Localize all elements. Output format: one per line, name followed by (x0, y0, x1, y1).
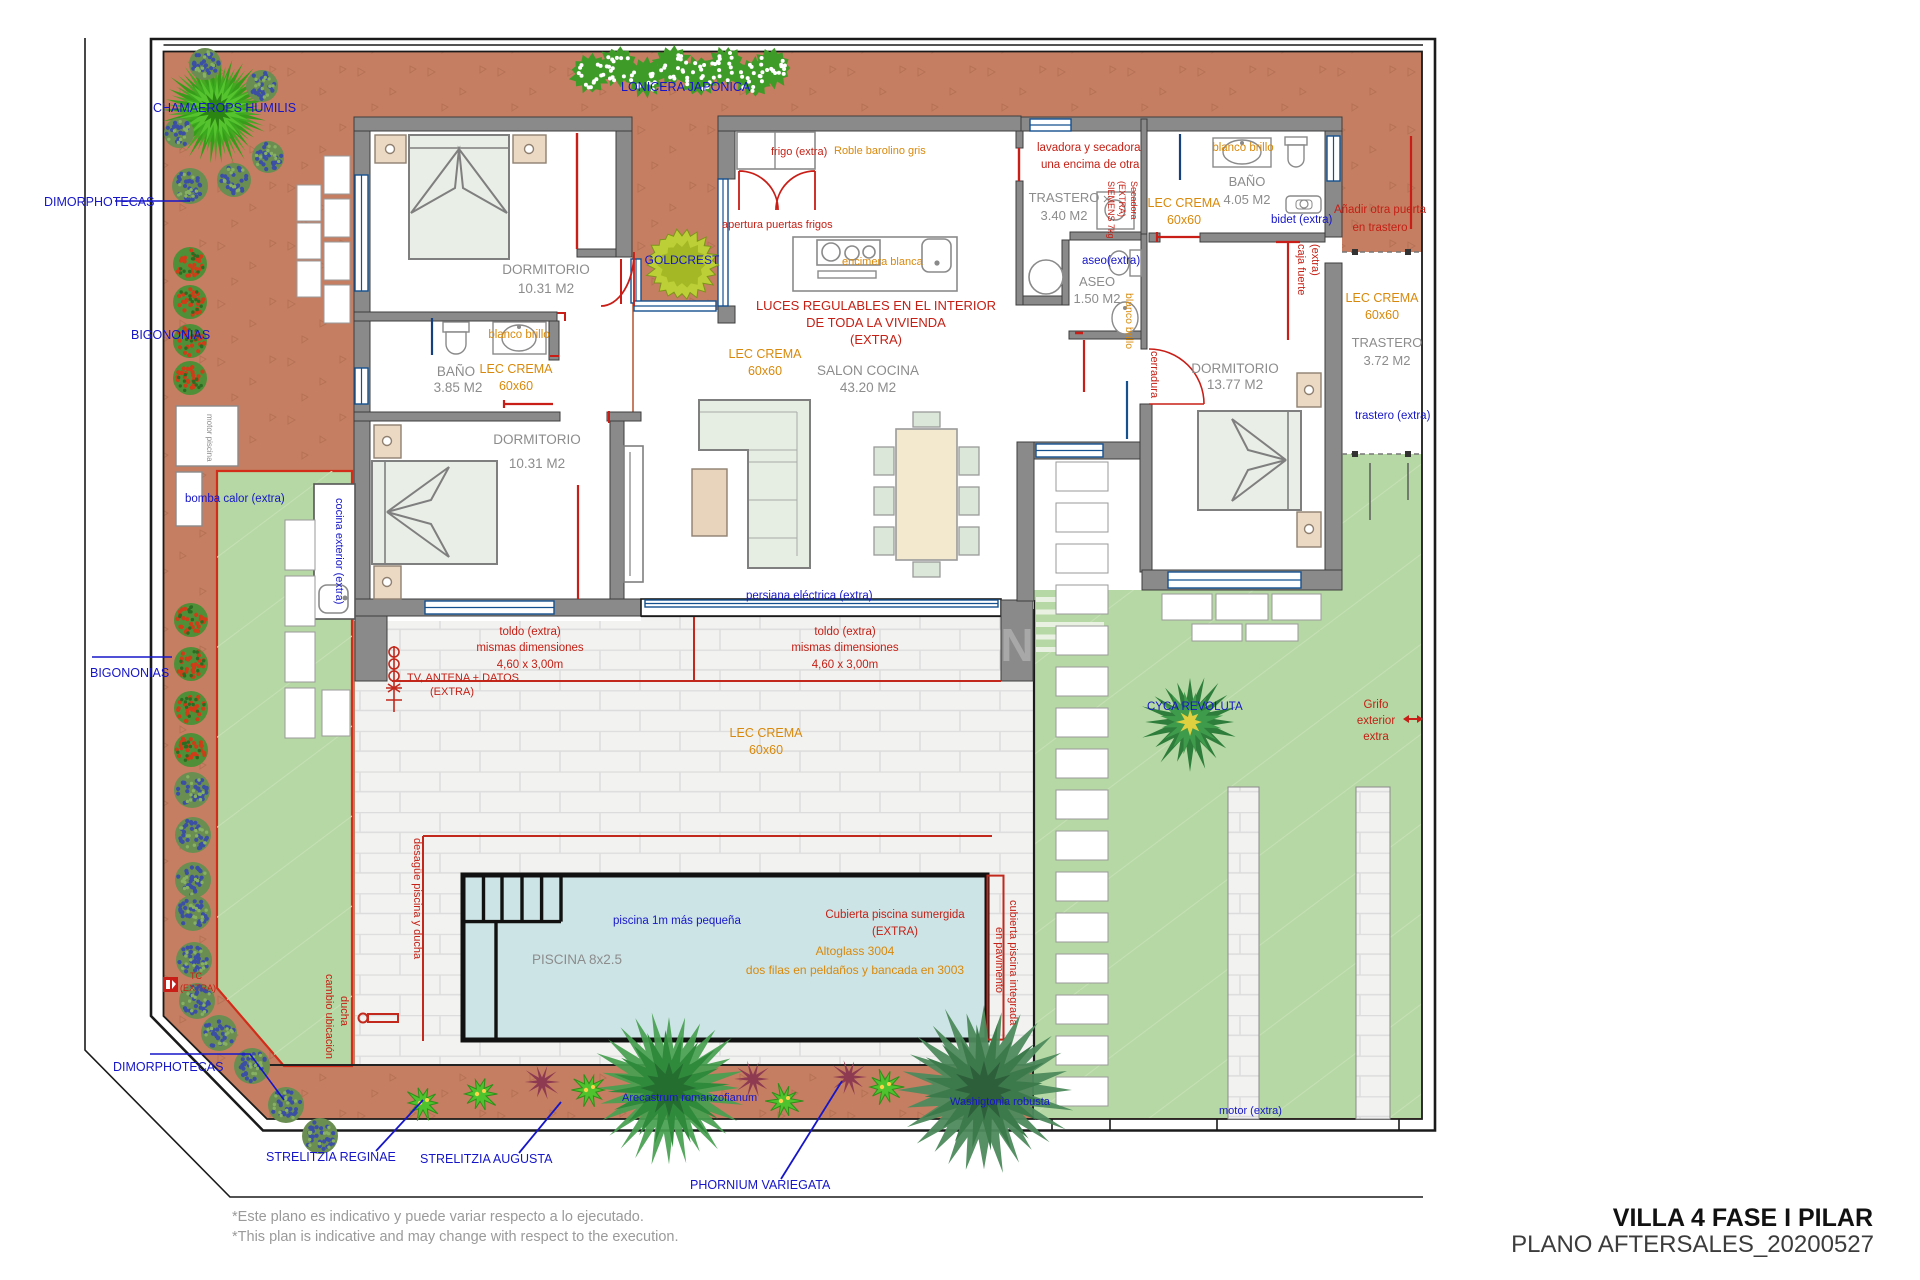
svg-text:LEC CREMA: LEC CREMA (1346, 291, 1420, 305)
svg-text:en trastero: en trastero (1353, 222, 1408, 234)
svg-text:GOLDCREST: GOLDCREST (645, 253, 720, 267)
svg-text:LEC CREMA: LEC CREMA (729, 347, 803, 361)
svg-text:blanco brillo: blanco brillo (1123, 293, 1135, 349)
svg-text:extra: extra (1363, 731, 1389, 743)
svg-text:cubierta piscina integrada: cubierta piscina integrada (1007, 900, 1019, 1026)
svg-text:13.77 M2: 13.77 M2 (1207, 377, 1263, 392)
svg-text:CYCA REVOLUTA: CYCA REVOLUTA (1147, 701, 1243, 713)
svg-text:Washigtonia robusta: Washigtonia robusta (950, 1096, 1051, 1108)
svg-text:SALON COCINA: SALON COCINA (817, 363, 919, 378)
svg-text:(EXTRA): (EXTRA) (430, 686, 474, 698)
svg-text:cerradura: cerradura (1148, 351, 1160, 399)
svg-text:Roble barolino gris: Roble barolino gris (834, 145, 926, 157)
svg-text:(EXTRA): (EXTRA) (1117, 181, 1127, 217)
svg-text:TRASTERO: TRASTERO (1029, 190, 1100, 205)
svg-text:Secadora: Secadora (1129, 181, 1139, 220)
svg-text:60x60: 60x60 (749, 743, 783, 757)
svg-text:encimera blanca: encimera blanca (842, 256, 924, 268)
svg-text:cocina exterior (extra): cocina exterior (extra) (333, 498, 345, 604)
svg-text:apertura puertas frigos: apertura puertas frigos (722, 219, 833, 231)
svg-text:BIGONONIAS: BIGONONIAS (131, 328, 210, 342)
svg-text:Altoglass 3004: Altoglass 3004 (816, 944, 895, 958)
svg-text:mismas dimensiones: mismas dimensiones (791, 642, 899, 654)
svg-text:LEC CREMA: LEC CREMA (730, 726, 804, 740)
svg-text:(EXTRA): (EXTRA) (850, 332, 902, 347)
svg-text:DIMORPHOTECAS: DIMORPHOTECAS (44, 195, 154, 209)
svg-text:(EXTRA): (EXTRA) (872, 926, 918, 938)
svg-text:frigo (extra): frigo (extra) (771, 146, 827, 158)
svg-text:(EXTRA): (EXTRA) (180, 983, 216, 993)
svg-text:piscina 1m más pequeña: piscina 1m más pequeña (613, 915, 741, 927)
svg-text:DORMITORIO: DORMITORIO (502, 262, 590, 277)
svg-text:Grifo: Grifo (1364, 699, 1389, 711)
svg-text:LUCES REGULABLES EN EL INTERIO: LUCES REGULABLES EN EL INTERIOR (756, 298, 996, 313)
svg-text:CHAMAEROPS HUMILIS: CHAMAEROPS HUMILIS (153, 101, 296, 115)
svg-text:DE TODA LA VIVIENDA: DE TODA LA VIVIENDA (806, 315, 946, 330)
svg-text:ASEO: ASEO (1079, 274, 1115, 289)
svg-text:blanco brillo: blanco brillo (1212, 142, 1273, 154)
svg-text:60x60: 60x60 (1167, 213, 1201, 227)
svg-text:motor (extra): motor (extra) (1219, 1105, 1282, 1117)
svg-text:LEC CREMA: LEC CREMA (480, 362, 554, 376)
svg-text:*Este plano es indicativo y pu: *Este plano es indicativo y puede variar… (232, 1209, 644, 1225)
svg-text:TRASTERO: TRASTERO (1352, 335, 1423, 350)
svg-text:3.85 M2: 3.85 M2 (434, 380, 483, 395)
svg-text:DIMORPHOTECAS: DIMORPHOTECAS (113, 1060, 223, 1074)
svg-text:STRELITZIA AUGUSTA: STRELITZIA AUGUSTA (420, 1152, 553, 1166)
svg-text:(extra): (extra) (1309, 244, 1321, 276)
svg-text:N: N (1000, 619, 1033, 671)
svg-text:exterior: exterior (1357, 715, 1396, 727)
svg-text:bidet (extra): bidet (extra) (1271, 214, 1333, 226)
svg-text:dos filas en peldaños y bancad: dos filas en peldaños y bancada en 3003 (746, 963, 964, 977)
svg-text:60x60: 60x60 (499, 379, 533, 393)
svg-text:DORMITORIO: DORMITORIO (1191, 361, 1279, 376)
svg-text:toldo (extra): toldo (extra) (499, 626, 561, 638)
svg-text:caja fuerte: caja fuerte (1295, 244, 1307, 295)
svg-text:PLANO AFTERSALES_20200527: PLANO AFTERSALES_20200527 (1511, 1231, 1874, 1258)
svg-text:BAÑO: BAÑO (1229, 174, 1266, 189)
svg-text:VILLA 4 FASE I PILAR: VILLA 4 FASE I PILAR (1613, 1204, 1873, 1232)
svg-text:BIGONONIAS: BIGONONIAS (90, 666, 169, 680)
svg-text:una encima de otra: una encima de otra (1041, 159, 1140, 171)
svg-text:PISCINA 8x2.5: PISCINA 8x2.5 (532, 952, 622, 967)
svg-text:60x60: 60x60 (748, 364, 782, 378)
svg-text:TC: TC (190, 971, 202, 981)
svg-text:toldo (extra): toldo (extra) (814, 626, 876, 638)
svg-text:3.40 M2: 3.40 M2 (1041, 208, 1088, 223)
svg-text:bomba calor (extra): bomba calor (extra) (185, 493, 285, 505)
svg-text:10.31 M2: 10.31 M2 (518, 281, 574, 296)
svg-text:motor piscina: motor piscina (205, 414, 214, 462)
svg-text:Añadir otra puerta: Añadir otra puerta (1334, 204, 1427, 216)
svg-text:3.72 M2: 3.72 M2 (1364, 353, 1411, 368)
svg-text:ducha: ducha (338, 996, 350, 1027)
svg-text:en pavimento: en pavimento (993, 927, 1005, 993)
svg-text:4.05 M2: 4.05 M2 (1224, 192, 1271, 207)
svg-text:mismas dimensiones: mismas dimensiones (476, 642, 584, 654)
svg-text:Arecastrum romanzofianum: Arecastrum romanzofianum (622, 1092, 757, 1104)
svg-text:*This plan is indicative and m: *This plan is indicative and may change … (232, 1229, 679, 1245)
svg-text:1.50 M2: 1.50 M2 (1074, 291, 1121, 306)
svg-text:43.20 M2: 43.20 M2 (840, 380, 896, 395)
svg-text:4,60 x 3,00m: 4,60 x 3,00m (497, 659, 563, 671)
svg-text:4,60 x 3,00m: 4,60 x 3,00m (812, 659, 878, 671)
svg-text:Cubierta piscina sumergida: Cubierta piscina sumergida (825, 909, 965, 921)
svg-text:trastero (extra): trastero (extra) (1355, 410, 1431, 422)
svg-text:60x60: 60x60 (1365, 308, 1399, 322)
svg-text:cambio ubicación: cambio ubicación (323, 974, 335, 1059)
svg-text:blanco brillo: blanco brillo (488, 329, 549, 341)
svg-text:aseo(extra): aseo(extra) (1082, 255, 1140, 267)
svg-text:LEC CREMA: LEC CREMA (1148, 196, 1222, 210)
svg-text:STRELITZIA REGINAE: STRELITZIA REGINAE (266, 1150, 396, 1164)
svg-text:TV, ANTENA + DATOS: TV, ANTENA + DATOS (407, 672, 519, 684)
svg-text:lavadora y secadora: lavadora y secadora (1037, 142, 1141, 154)
svg-text:persiana eléctrica (extra): persiana eléctrica (extra) (746, 590, 873, 602)
svg-text:BAÑO: BAÑO (437, 364, 475, 379)
svg-text:LONICERA JAPONICA: LONICERA JAPONICA (621, 80, 751, 94)
svg-text:PHORNIUM VARIEGATA: PHORNIUM VARIEGATA (690, 1178, 831, 1192)
svg-text:10.31 M2: 10.31 M2 (509, 456, 565, 471)
svg-text:DORMITORIO: DORMITORIO (493, 432, 581, 447)
svg-text:desagüe piscina y ducha: desagüe piscina y ducha (411, 838, 423, 960)
svg-text:SIEMENS 7kg: SIEMENS 7kg (1106, 181, 1116, 239)
